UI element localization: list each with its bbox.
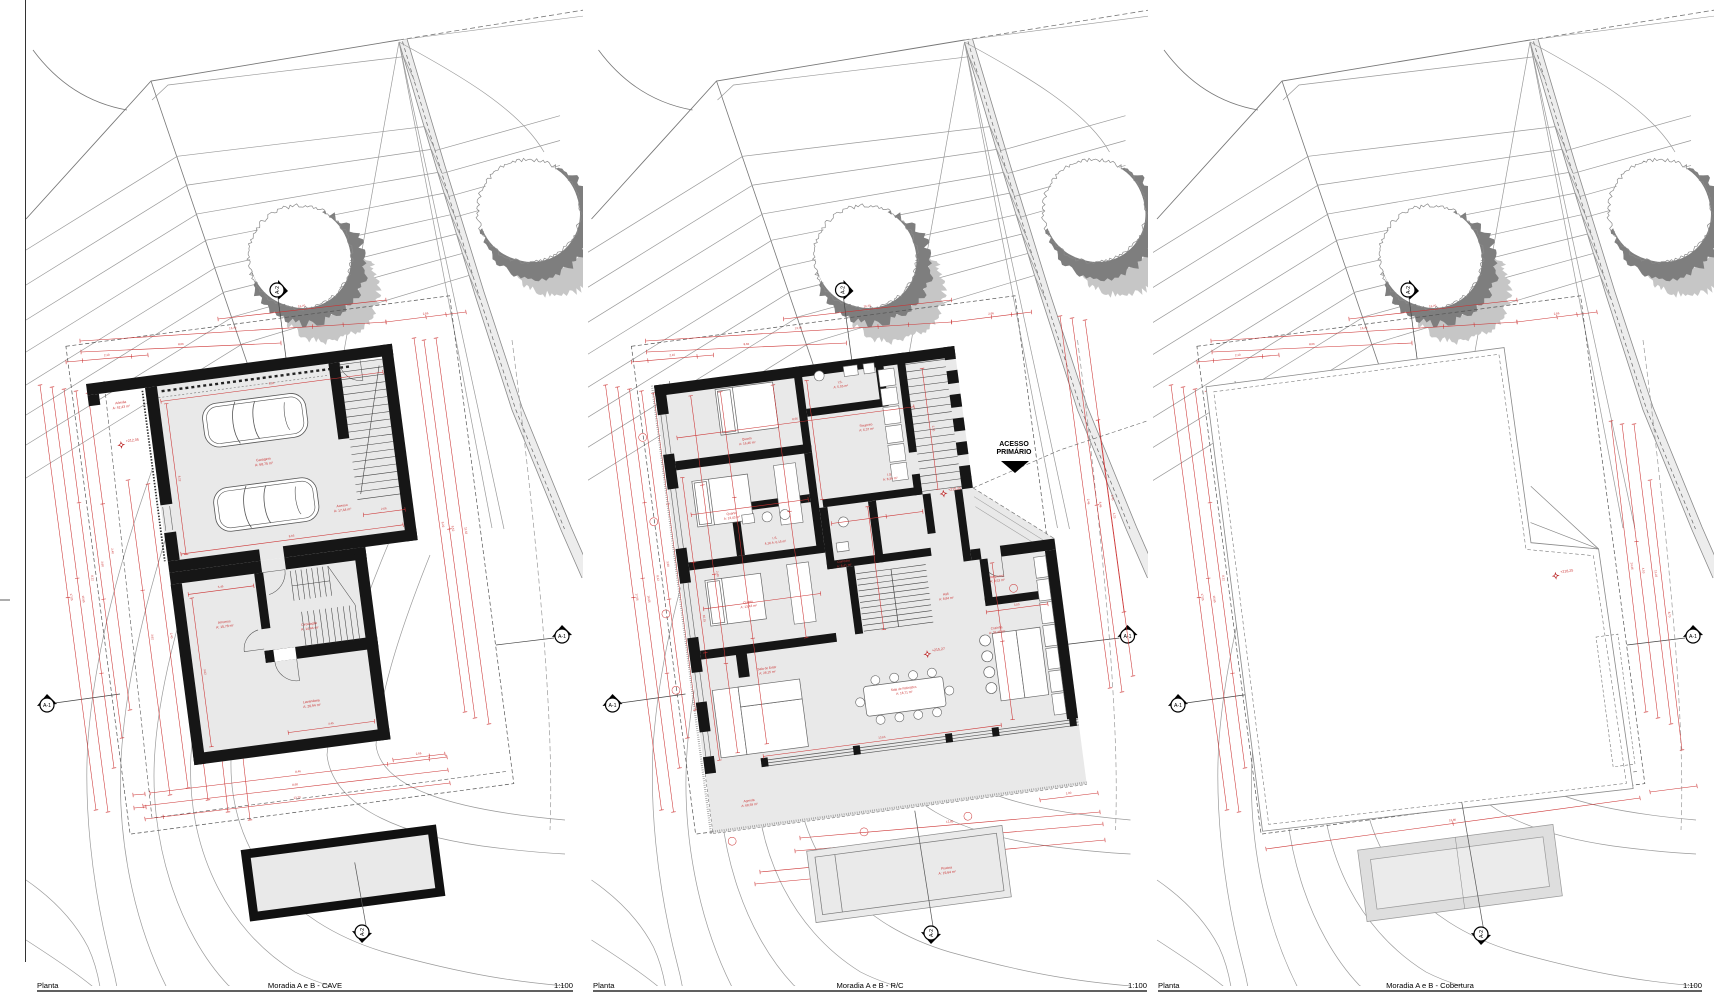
svg-text:2.66: 2.66	[381, 506, 387, 511]
svg-text:2,40: 2,40	[169, 633, 174, 639]
svg-text:2,40: 2,40	[715, 571, 720, 577]
svg-text:1,00: 1,00	[1066, 791, 1072, 796]
svg-text:A-2: A-2	[360, 928, 366, 936]
svg-text:1:100: 1:100	[554, 981, 573, 990]
svg-text:3.46: 3.46	[218, 584, 224, 589]
svg-text:12,85: 12,85	[946, 819, 954, 824]
svg-text:2,46: 2,46	[1086, 499, 1091, 506]
svg-text:PRIMÁRIO: PRIMÁRIO	[997, 447, 1033, 456]
svg-text:8.55: 8.55	[268, 381, 274, 386]
svg-text:Moradia A e B - Cobertura: Moradia A e B - Cobertura	[1386, 981, 1475, 990]
svg-text:A-2: A-2	[1479, 930, 1485, 938]
svg-text:8,70: 8,70	[1667, 612, 1672, 618]
svg-text:ACESSO: ACESSO	[999, 441, 1029, 448]
svg-text:3.62: 3.62	[203, 669, 208, 675]
svg-text:2,40: 2,40	[1110, 495, 1115, 502]
svg-text:4,53: 4,53	[1641, 568, 1646, 574]
svg-text:Planta: Planta	[1158, 981, 1180, 990]
svg-text:8.66: 8.66	[289, 534, 295, 539]
svg-text:A-2: A-2	[929, 929, 935, 937]
svg-text:8,46: 8,46	[295, 769, 301, 774]
svg-text:2,66: 2,66	[416, 751, 422, 756]
svg-text:1:100: 1:100	[1128, 981, 1147, 990]
svg-text:2,10: 2,10	[931, 425, 936, 431]
svg-text:3,62: 3,62	[150, 634, 155, 640]
svg-text:8,46: 8,46	[1098, 502, 1103, 508]
svg-text:8,22: 8,22	[441, 521, 446, 528]
svg-text:1,23: 1,23	[1112, 513, 1117, 520]
svg-text:8.22: 8.22	[177, 476, 182, 482]
svg-text:Moradia A e B - CAVE: Moradia A e B - CAVE	[268, 981, 342, 990]
svg-text:8,66: 8,66	[792, 416, 798, 421]
svg-text:Planta: Planta	[37, 981, 59, 990]
svg-text:8,68: 8,68	[292, 782, 298, 787]
svg-text:8,52: 8,52	[451, 526, 456, 533]
svg-text:3,00: 3,00	[1014, 602, 1020, 607]
svg-text:Planta: Planta	[593, 981, 615, 990]
svg-text:1:100: 1:100	[1683, 981, 1702, 990]
svg-text:4.45: 4.45	[328, 721, 334, 726]
svg-text:Moradia A e B - R/C: Moradia A e B - R/C	[836, 981, 904, 990]
